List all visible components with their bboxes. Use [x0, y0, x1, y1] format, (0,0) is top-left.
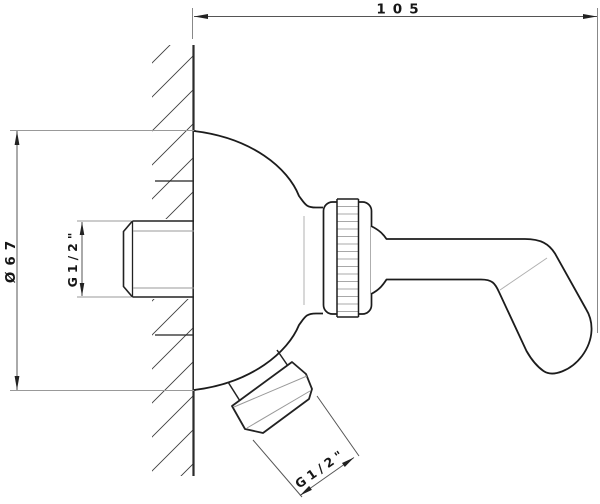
arrowhead-up [80, 222, 85, 235]
arrowhead-left [194, 14, 208, 19]
arrowhead-down [15, 376, 20, 390]
escutcheon-dome [194, 131, 323, 390]
knurled-cap [324, 199, 372, 317]
dimension-width-label: 105 [376, 2, 425, 18]
dimension-diameter-label: Ø67 [3, 235, 19, 283]
lever-handle [371, 226, 592, 373]
dimension-inlet-thread: G1/2" [65, 221, 131, 297]
drawing-page: 105 Ø67 G1/2" [0, 0, 600, 504]
arrowhead-right [583, 14, 597, 19]
dimension-inlet-thread-label: G1/2" [65, 229, 80, 288]
arrowhead-down [80, 283, 85, 296]
dimension-outlet-thread-label: G1/2" [292, 445, 349, 491]
technical-drawing-canvas: 105 Ø67 G1/2" [0, 0, 600, 504]
arrowhead-up [15, 131, 20, 145]
